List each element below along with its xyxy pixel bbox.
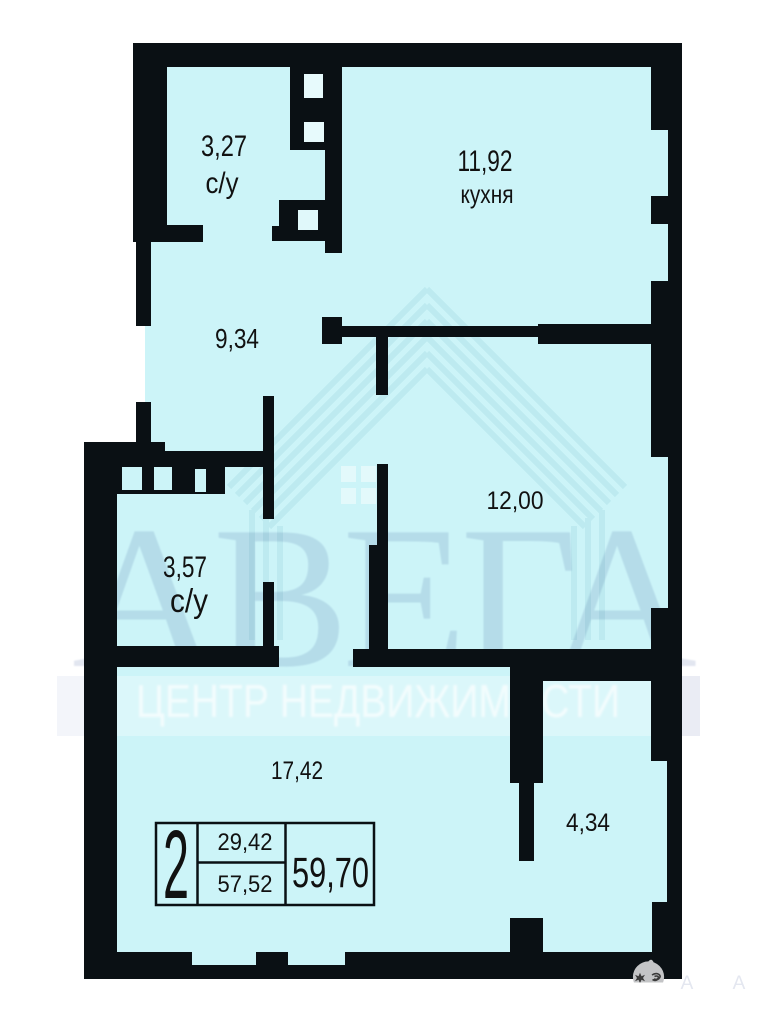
svg-text:ЦЕНТР НЕДВИЖИМОСТИ: ЦЕНТР НЕДВИЖИМОСТИ	[136, 675, 620, 727]
svg-text:11,92: 11,92	[458, 145, 513, 178]
svg-text:А: А	[681, 973, 694, 994]
svg-text:17,42: 17,42	[271, 757, 323, 785]
svg-text:12,00: 12,00	[487, 487, 544, 515]
svg-text:А: А	[733, 973, 746, 994]
svg-text:9,34: 9,34	[215, 323, 259, 354]
svg-text:59,70: 59,70	[292, 850, 369, 897]
svg-text:кухня: кухня	[461, 179, 514, 209]
svg-text:3,27: 3,27	[201, 130, 247, 163]
svg-text:с/у: с/у	[206, 167, 239, 200]
svg-text:4,34: 4,34	[566, 809, 610, 837]
svg-text:57,52: 57,52	[218, 871, 273, 898]
svg-text:3,57: 3,57	[163, 551, 207, 584]
svg-text:с/у: с/у	[170, 582, 208, 619]
svg-text:29,42: 29,42	[218, 829, 273, 856]
svg-text:2: 2	[163, 810, 189, 919]
